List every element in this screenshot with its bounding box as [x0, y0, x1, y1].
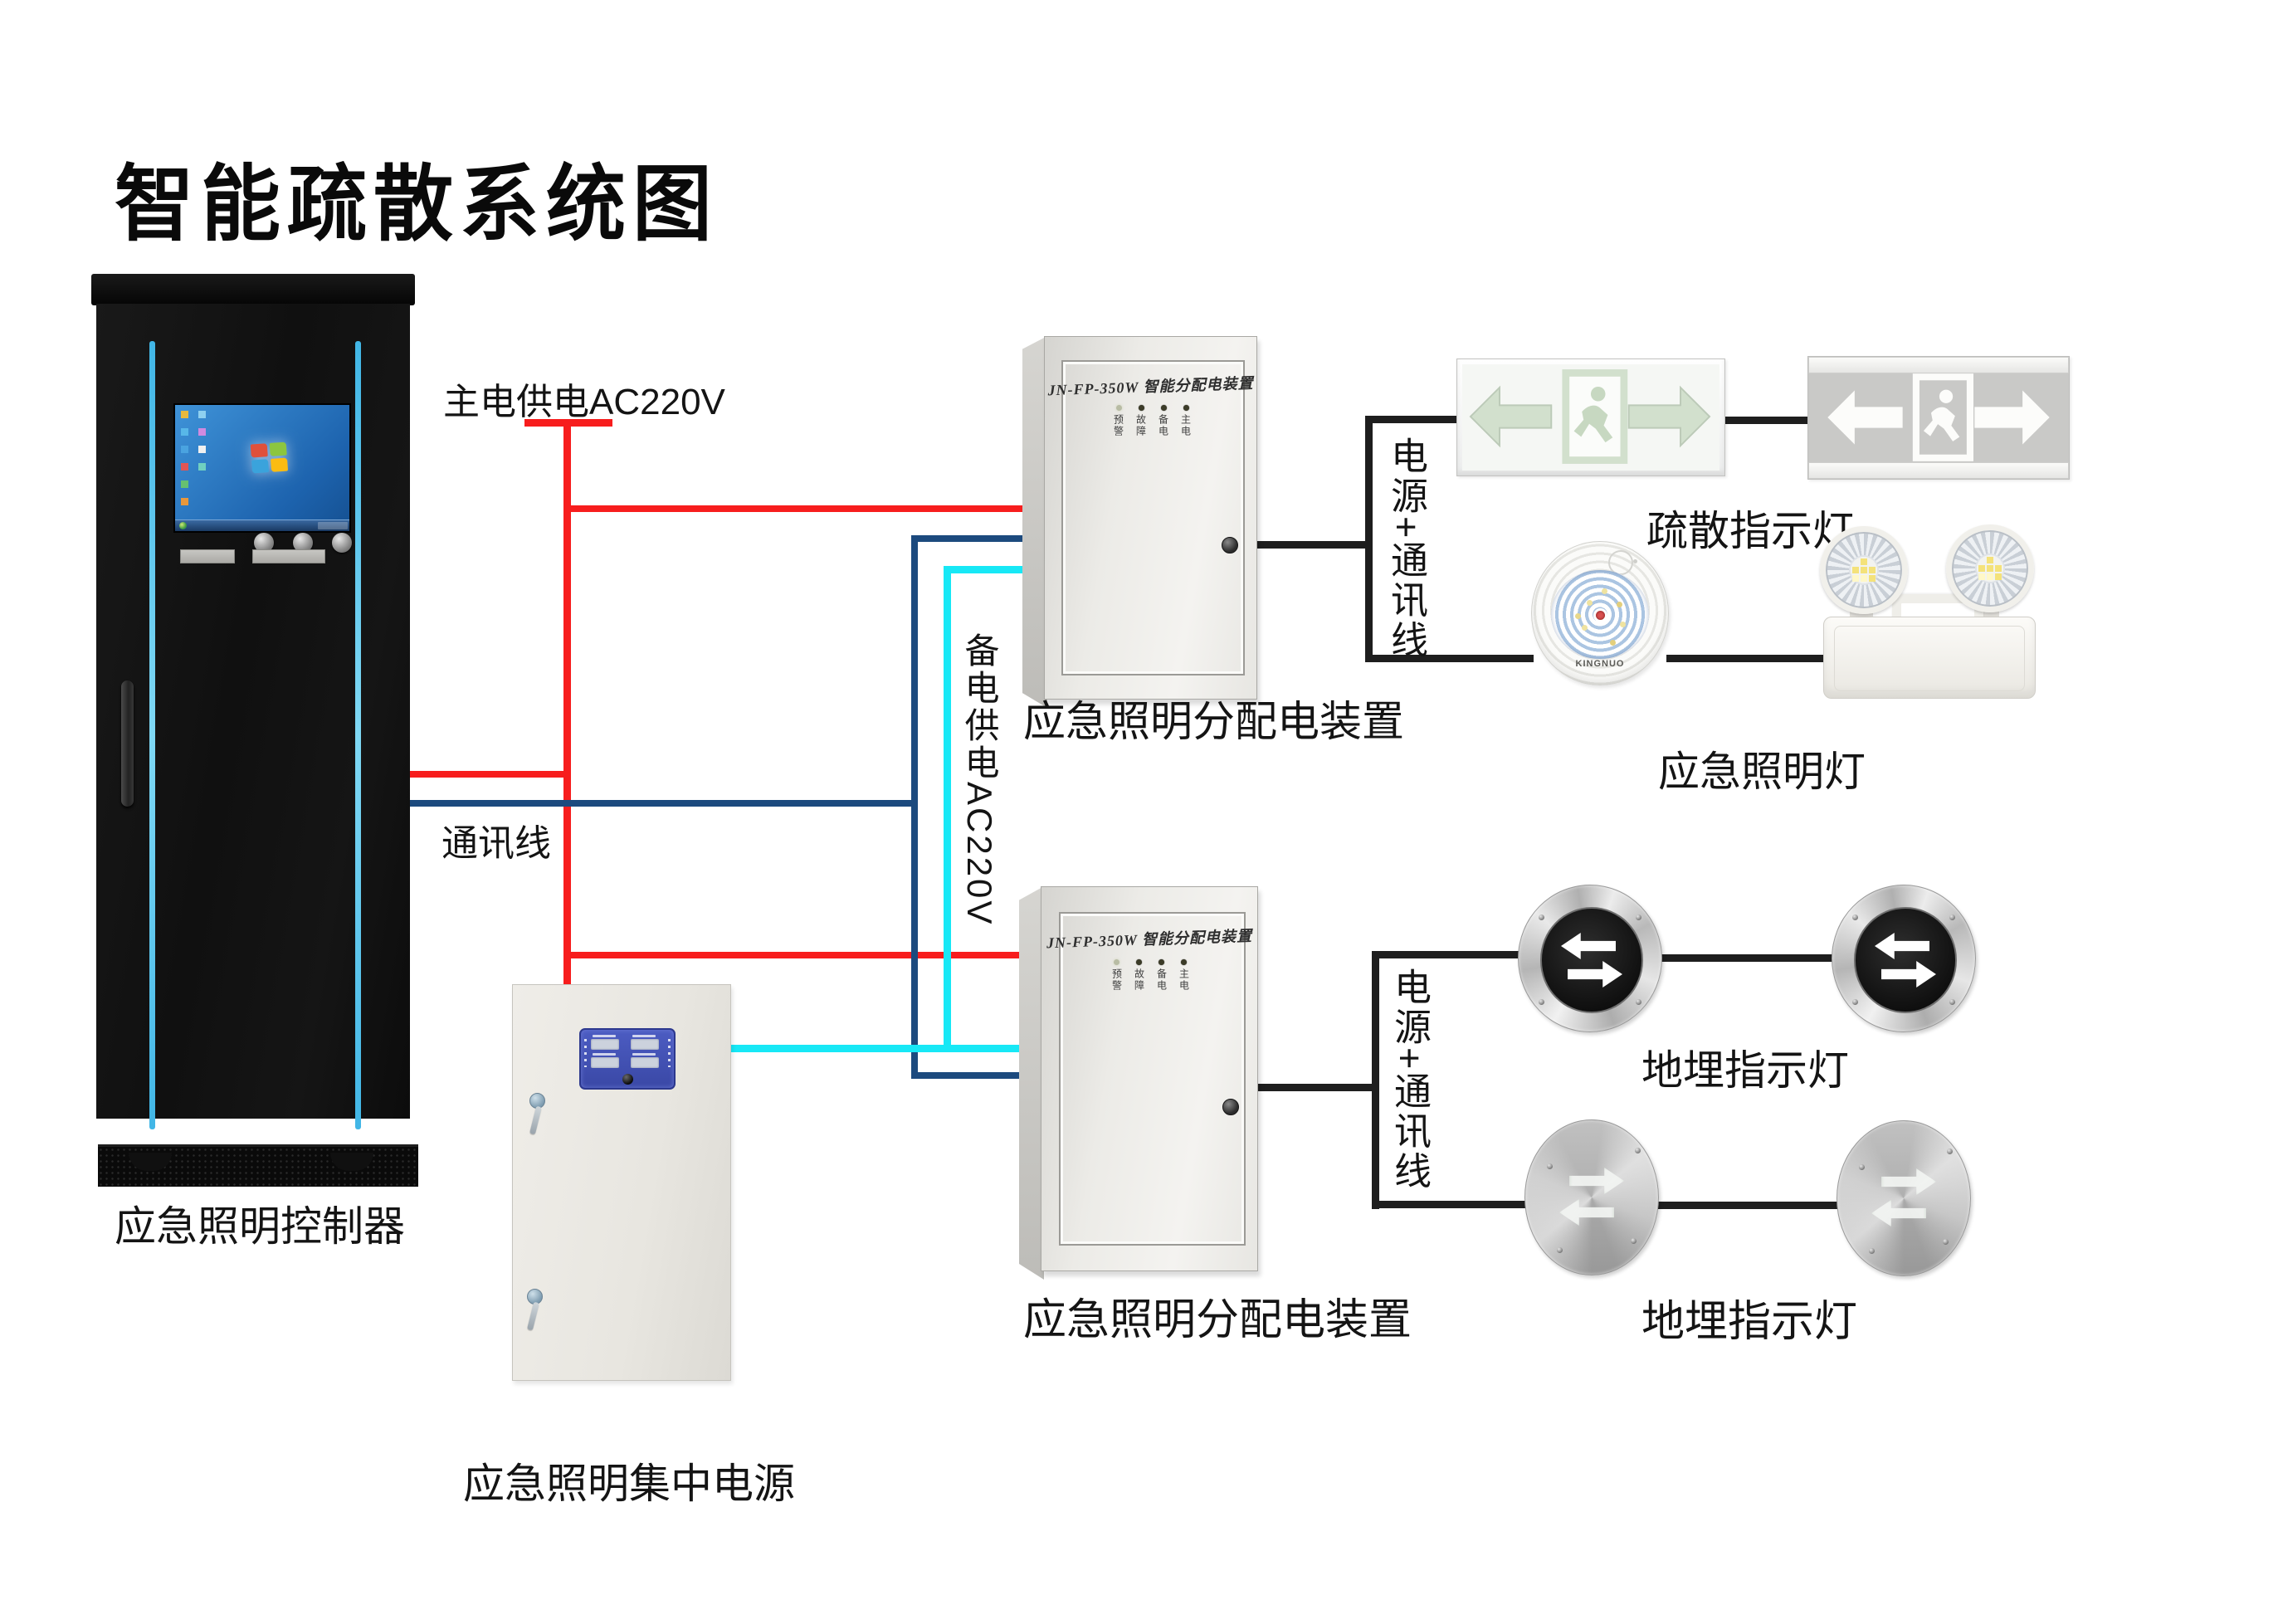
cabinet-accent-strip-left	[149, 341, 155, 1129]
box2-output-line	[1257, 1084, 1376, 1091]
arrow-right-icon	[1569, 1168, 1624, 1194]
box1-led-indicators: 预警 故障 备电 主电	[1112, 405, 1193, 437]
psu-control-panel	[579, 1028, 676, 1090]
ground-light-label-1: 地埋指示灯	[1641, 1037, 1849, 1097]
twin-battery-box	[1823, 617, 2036, 699]
led-main-icon	[1181, 959, 1187, 965]
led-fault-icon	[1136, 959, 1142, 965]
desktop-icons	[181, 411, 188, 418]
page-title: 智能疏散系统图	[115, 137, 719, 257]
twin-lamp-head-left	[1820, 526, 1908, 614]
main-power-line-to-controller	[407, 771, 571, 778]
line-to-ground-lights-1	[1376, 951, 1520, 958]
psu-display-4	[631, 1057, 659, 1068]
arrow-right-icon	[1881, 961, 1936, 988]
ground-light-black-2	[1832, 885, 1976, 1032]
main-power-line-to-box2	[567, 952, 1023, 958]
cabinet-label-strip-1	[180, 549, 235, 563]
arrow-right-icon	[1568, 961, 1622, 988]
psu-key-lower	[527, 1302, 539, 1331]
power-comm-label-bottom: 电源+通讯线	[1383, 968, 1437, 1191]
twin-head-emergency-light	[1820, 528, 2049, 697]
cabinet-body	[96, 304, 410, 1119]
twin-lamp-head-right	[1946, 524, 2034, 612]
round-emergency-downlight: KINGNUO	[1531, 541, 1669, 685]
cabinet-door-handle	[121, 680, 134, 807]
line-to-exit-sign1	[1371, 416, 1457, 423]
lamp-lens	[1551, 570, 1649, 659]
emergency-light-label: 应急照明灯	[1658, 739, 1866, 798]
distribution-box1-label: 应急照明分配电装置	[1023, 687, 1404, 749]
backup-power-line-to-box1	[947, 566, 1025, 573]
controller-screen	[173, 403, 351, 533]
exit-sign2-bottom-bar	[1808, 462, 2069, 479]
ground-light-silver-1	[1524, 1119, 1659, 1275]
ground-light-silver-2	[1837, 1120, 1971, 1276]
power-comm-label-top: 电源+通讯线	[1379, 436, 1433, 660]
ground-light-face	[1540, 907, 1643, 1012]
box1-output-riser	[1365, 416, 1373, 662]
main-power-label: 主电供电AC220V	[443, 372, 725, 425]
cabinet-label-strip-2	[252, 549, 325, 563]
taskbar	[175, 519, 349, 531]
start-orb-icon	[179, 522, 187, 529]
box2-led-indicators: 预警 故障 备电 主电	[1110, 959, 1191, 992]
exit-sign-edge-lit	[1456, 358, 1725, 476]
backup-power-riser	[944, 566, 951, 1049]
box2-output-riser	[1372, 951, 1379, 1209]
power-supply-label: 应急照明集中电源	[463, 1451, 795, 1510]
brand-text: KINGNUO	[1532, 659, 1668, 669]
central-power-supply-box	[512, 984, 731, 1381]
comm-line-from-controller	[407, 800, 918, 807]
led-fault-icon	[1139, 405, 1144, 411]
led-backup-icon	[1159, 959, 1164, 965]
cabinet-top-cap	[91, 274, 415, 305]
arrow-left-icon	[1559, 1199, 1614, 1226]
main-power-line-to-box1	[567, 505, 1023, 512]
arrow-left-icon	[1561, 933, 1616, 959]
backup-power-label: 备电供电AC220V	[954, 632, 1005, 926]
exit-running-man-icon	[1822, 371, 2056, 464]
psu-display-2	[631, 1039, 659, 1050]
exit-sign-box-type	[1807, 356, 2070, 480]
distribution-box2-label: 应急照明分配电装置	[1023, 1285, 1412, 1347]
arrow-left-icon	[1875, 933, 1929, 959]
exit-running-man-icon	[1469, 366, 1711, 467]
line-sign1-to-sign2	[1723, 417, 1808, 424]
distribution-box-2: JN-FP-350W 智能分配电装置 预警 故障 备电 主电	[1019, 886, 1258, 1280]
cabinet-button-3	[332, 533, 352, 553]
line-ground2a-to-ground2b	[1656, 1202, 1837, 1209]
led-prealarm-icon	[1114, 959, 1119, 965]
comm-line-label: 通讯线	[441, 813, 551, 866]
diagram-canvas: 智能疏散系统图 主电供电AC220V 通讯线 备电供电AC220V 电源+通讯线…	[0, 0, 2278, 1624]
distribution-box-1: JN-FP-350W 智能分配电装置 预警 故障 备电 主电	[1022, 336, 1257, 708]
psu-knob	[622, 1074, 633, 1085]
led-center-dot	[1596, 611, 1605, 620]
box1-output-line	[1255, 541, 1371, 549]
backup-power-line-from-psu	[726, 1045, 1025, 1052]
box2-door-lock	[1222, 1099, 1239, 1115]
cabinet-accent-strip-right	[355, 341, 361, 1129]
comm-line-to-box1	[915, 535, 1023, 542]
psu-display-3	[591, 1057, 619, 1068]
arrow-left-icon	[1871, 1200, 1926, 1227]
psu-display-1	[591, 1039, 619, 1050]
arrow-right-icon	[1881, 1168, 1936, 1195]
windows-logo-icon	[251, 442, 290, 476]
led-prealarm-icon	[1116, 405, 1122, 411]
ground-light-label-2: 地埋指示灯	[1641, 1286, 1857, 1348]
comm-line-to-box2	[915, 1072, 1023, 1079]
led-main-icon	[1183, 405, 1189, 411]
ground-light-black-1	[1518, 885, 1662, 1032]
line-roundlamp-to-twinlamp	[1666, 655, 1826, 662]
comm-line-riser	[911, 535, 918, 1079]
controller-label: 应急照明控制器	[115, 1193, 405, 1253]
led-backup-icon	[1161, 405, 1167, 411]
psu-key-upper	[529, 1106, 542, 1135]
line-to-ground-lights-2	[1376, 1201, 1526, 1208]
line-ground1a-to-ground1b	[1660, 954, 1832, 962]
system-tray	[318, 522, 348, 529]
emergency-lighting-controller-cabinet	[91, 274, 415, 1174]
ground-light-face	[1854, 907, 1957, 1012]
